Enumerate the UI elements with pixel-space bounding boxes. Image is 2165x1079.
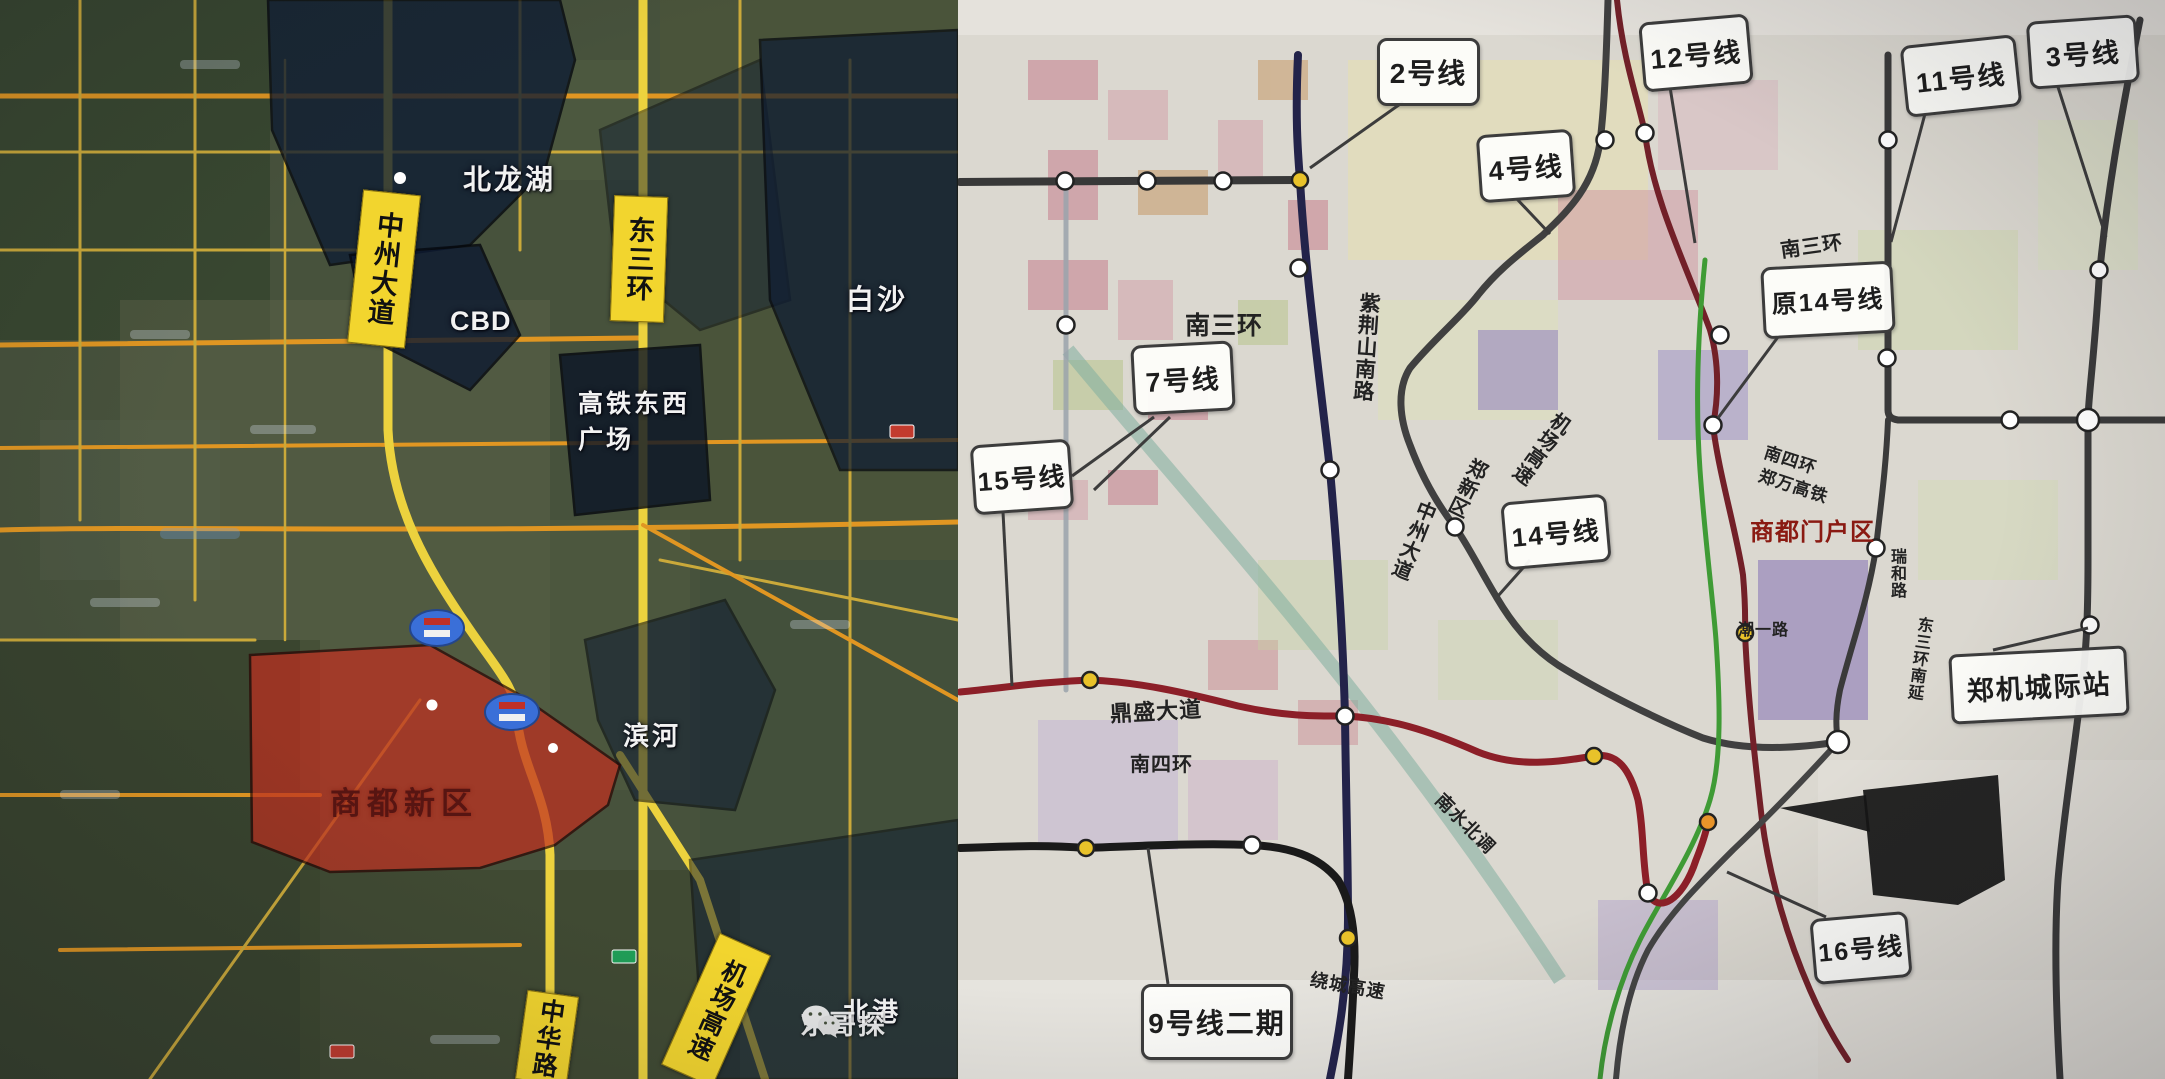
bubble-line-7: 7号线 bbox=[1130, 340, 1236, 415]
label-gaotie-square-line2: 广场 bbox=[578, 420, 634, 456]
label-dingsheng-avenue: 鼎盛大道 bbox=[1109, 692, 1203, 729]
label-gaotie-square-line1: 高铁东西 bbox=[578, 384, 690, 420]
bubble-line-15: 15号线 bbox=[970, 439, 1075, 516]
metro-line-7-top-path bbox=[960, 180, 1300, 182]
wechat-icon bbox=[800, 1003, 842, 1039]
two-panel-map-photo: 中州大道 东三环 中华路 机场高速 北龙湖 CBD 白沙 高铁东西 广场 商都新… bbox=[0, 0, 2165, 1079]
label-cbd: CBD bbox=[450, 306, 512, 337]
station-box-zhengji-intercity: 郑机城际站 bbox=[1948, 645, 2129, 724]
bubble-line-4: 4号线 bbox=[1476, 129, 1577, 204]
bubble-line-2: 2号线 bbox=[1377, 38, 1480, 106]
poi-dot bbox=[548, 743, 558, 753]
interchange-oval-marker bbox=[485, 694, 539, 730]
route-shield bbox=[890, 425, 914, 438]
satellite-map-panel: 中州大道 东三环 中华路 机场高速 北龙湖 CBD 白沙 高铁东西 广场 商都新… bbox=[0, 0, 958, 1079]
interchange-oval-marker bbox=[410, 610, 464, 646]
bubble-line-11: 11号线 bbox=[1900, 34, 2023, 118]
label-shangdu-new-district: 商都新区 bbox=[330, 778, 478, 823]
label-chaoyi-road: 潮一路 bbox=[1738, 616, 1789, 640]
label-south-third-ring-left: 南三环 bbox=[1185, 306, 1263, 342]
label-binhe: 滨河 bbox=[623, 716, 681, 753]
bubble-line-9-phase2: 9号线二期 bbox=[1141, 984, 1293, 1060]
black-callout-blob bbox=[1780, 775, 2005, 905]
route-shield bbox=[330, 1045, 354, 1058]
label-shangdu-gateway-district: 商都门户区 bbox=[1750, 512, 1875, 547]
poi-dot bbox=[394, 172, 406, 184]
region-beilonghu-polygon bbox=[268, 0, 575, 265]
route-shield bbox=[612, 950, 636, 963]
watermark: 东哥探 bbox=[800, 1003, 887, 1042]
metro-plan-panel: 2号线 4号线 12号线 11号线 3号线 7号线 15号线 原14号线 14号… bbox=[958, 0, 2165, 1079]
bubble-line-16: 16号线 bbox=[1809, 911, 1912, 985]
label-ruihe-road: 瑞和路 bbox=[1884, 548, 1908, 599]
bubble-line-12: 12号线 bbox=[1638, 13, 1754, 92]
bubble-line-14: 14号线 bbox=[1500, 494, 1612, 571]
bubble-line-3: 3号线 bbox=[2026, 14, 2140, 90]
label-beilonghu: 北龙湖 bbox=[463, 158, 556, 198]
label-south-fourth-ring: 南四环 bbox=[1130, 748, 1193, 777]
road-ribbon-east-third-ring: 东三环 bbox=[610, 195, 668, 323]
bubble-former-line-14: 原14号线 bbox=[1760, 261, 1896, 340]
label-baisha: 白沙 bbox=[846, 278, 908, 318]
poi-dot bbox=[427, 700, 438, 711]
